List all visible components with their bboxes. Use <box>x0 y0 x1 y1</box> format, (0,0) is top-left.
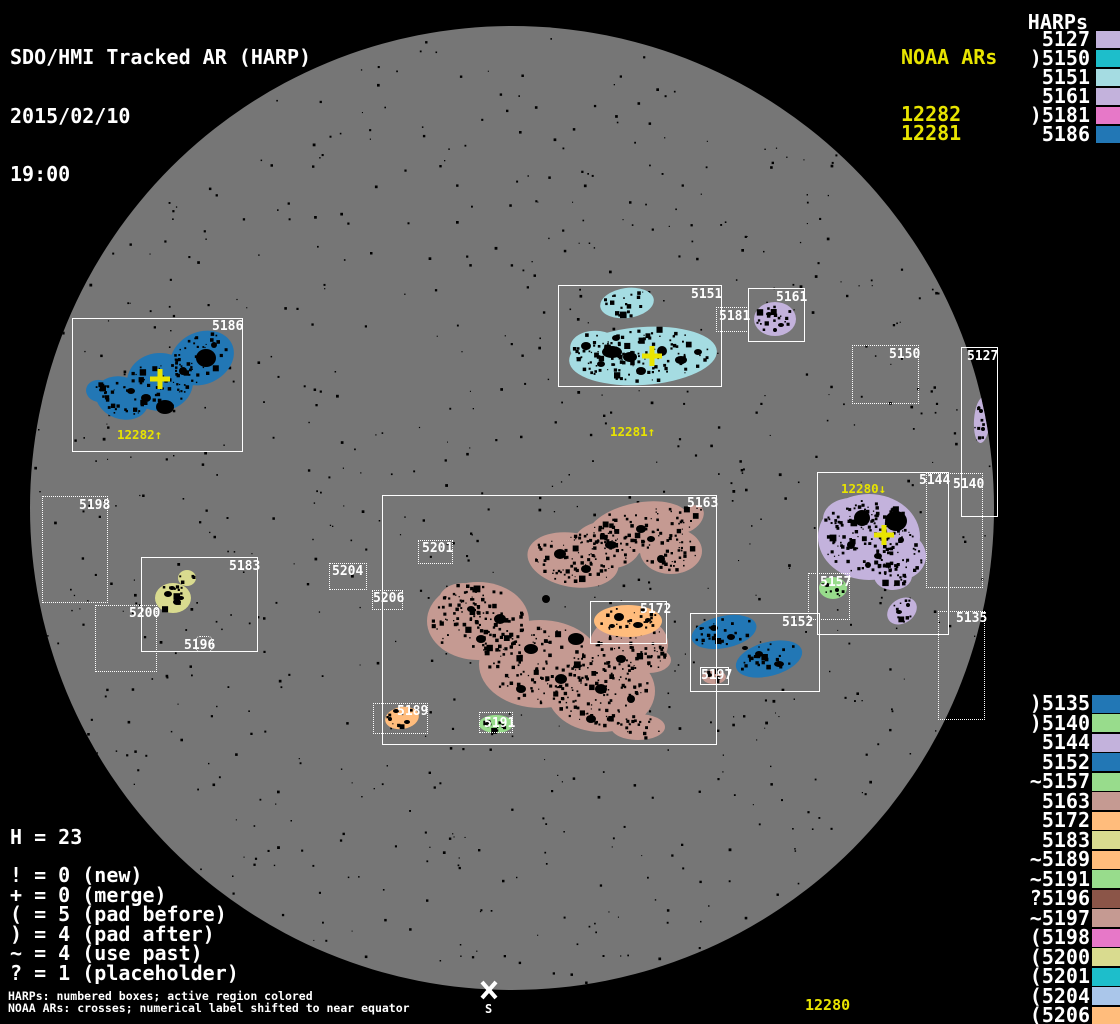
harp-color-swatch <box>1096 50 1120 67</box>
harp-number-5140: 5140 <box>953 478 984 491</box>
harp-solar-map: 12282↑12281↑12280↓5186515151615181515051… <box>0 0 1120 1024</box>
harp-number-5135: 5135 <box>956 612 987 625</box>
harp-number-5172: 5172 <box>640 603 671 616</box>
harp-number-5150: 5150 <box>889 348 920 361</box>
harp-count: H = 23 <box>10 828 82 848</box>
noaa-ar-items: 1228212281 <box>901 105 997 143</box>
harp-number-5196: 5196 <box>184 639 215 652</box>
harp-color-swatch <box>1092 792 1120 810</box>
harp-list-item: (5206 <box>1030 1006 1090 1024</box>
harp-number-5198: 5198 <box>79 499 110 512</box>
harp-number-5201: 5201 <box>422 542 453 555</box>
harp-color-swatch <box>1092 987 1120 1005</box>
harp-color-swatch <box>1092 831 1120 849</box>
harp-box-5186 <box>72 318 243 452</box>
harp-color-swatch <box>1096 88 1120 105</box>
symbol-legend: ! = 0 (new)+ = 0 (merge)( = 5 (pad befor… <box>10 866 239 984</box>
harp-color-swatch <box>1092 695 1120 713</box>
harp-color-swatch <box>1092 929 1120 947</box>
noaa-ar-item: 12281 <box>901 124 997 143</box>
harp-number-5161: 5161 <box>776 291 807 304</box>
harp-number-5206: 5206 <box>373 592 404 605</box>
harp-color-swatch <box>1096 126 1120 143</box>
harp-color-swatch <box>1096 69 1120 86</box>
harp-number-5127: 5127 <box>967 350 998 363</box>
harp-color-swatch <box>1092 851 1120 869</box>
legend-row: ? = 1 (placeholder) <box>10 964 239 984</box>
harp-color-swatch <box>1096 31 1120 48</box>
harp-color-swatch <box>1092 870 1120 888</box>
harp-number-5186: 5186 <box>212 320 243 333</box>
harp-color-swatch <box>1092 909 1120 927</box>
harp-number-5181: 5181 <box>719 310 750 323</box>
harp-color-swatch <box>1092 734 1120 752</box>
harp-color-swatch <box>1092 812 1120 830</box>
harp-box-5135 <box>938 611 985 720</box>
title-block: SDO/HMI Tracked AR (HARP) 2015/02/10 19:… <box>10 9 311 224</box>
time-label: 19:00 <box>10 165 311 185</box>
harp-color-swatch <box>1092 1007 1120 1024</box>
harp-color-swatch <box>1096 107 1120 124</box>
south-pole-label: S <box>485 1003 492 1015</box>
harp-color-swatch <box>1092 773 1120 791</box>
harp-number-5200: 5200 <box>129 607 160 620</box>
noaa-equator-label: 12280 <box>805 998 850 1013</box>
date-label: 2015/02/10 <box>10 107 311 127</box>
harp-number-5157: 5157 <box>820 576 851 589</box>
harp-number-5163: 5163 <box>687 497 718 510</box>
harp-number-5204: 5204 <box>332 565 363 578</box>
harp-color-swatch <box>1092 714 1120 732</box>
harp-list-item: 5186 <box>1042 125 1090 144</box>
harp-color-swatch <box>1092 890 1120 908</box>
noaa-label-12281: 12281↑ <box>610 425 655 438</box>
harp-number-5183: 5183 <box>229 560 260 573</box>
harp-number-5197: 5197 <box>701 669 732 682</box>
app-title: SDO/HMI Tracked AR (HARP) <box>10 48 311 68</box>
harp-color-swatch <box>1092 948 1120 966</box>
harp-number-5151: 5151 <box>691 288 722 301</box>
harp-number-5191: 5191 <box>484 717 515 730</box>
harp-color-swatch <box>1092 968 1120 986</box>
footnote-noaa: NOAA ARs: crosses; numerical label shift… <box>8 1002 410 1014</box>
harp-number-5189: 5189 <box>397 705 428 718</box>
harp-color-swatch <box>1092 753 1120 771</box>
noaa-ar-header: NOAA ARs <box>901 48 997 67</box>
noaa-ar-list: NOAA ARs 1228212281 <box>901 10 997 181</box>
